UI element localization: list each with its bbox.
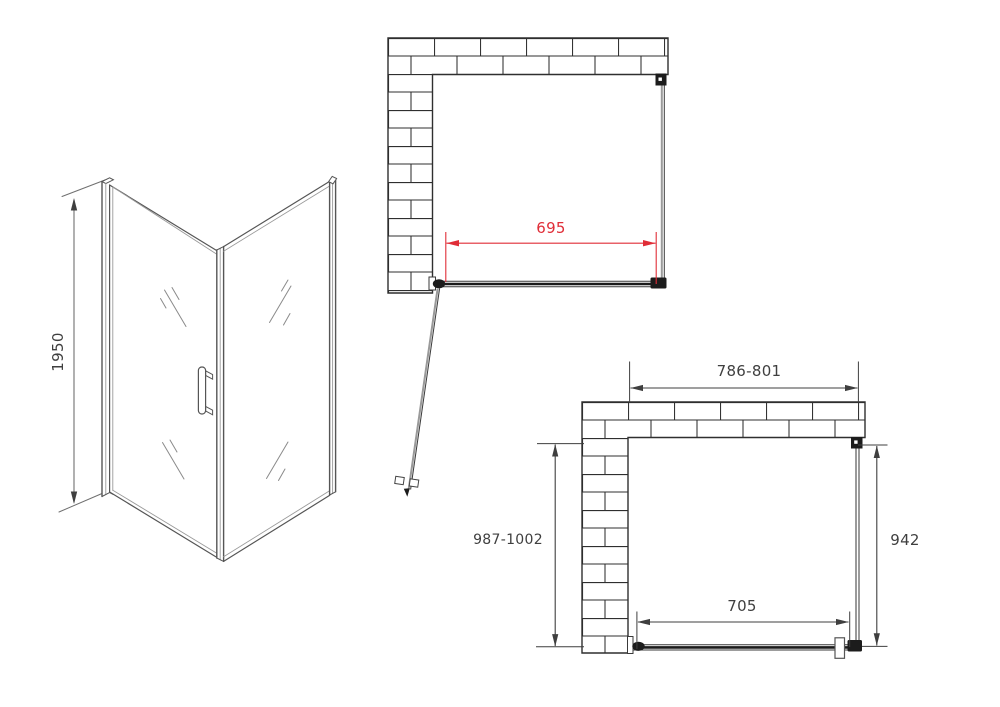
wall-profile (628, 637, 634, 654)
hinge (433, 279, 445, 288)
dim-label-height: 1950 (49, 332, 67, 371)
dim-label-total-depth: 987-1002 (473, 532, 543, 548)
glass-reflection-marks (161, 280, 292, 481)
closed-door-plan (628, 637, 863, 659)
door-knob (409, 479, 419, 487)
total-depth-dimension (536, 444, 584, 647)
arrow-down-icon (874, 633, 880, 646)
arrow-up-icon (552, 444, 558, 457)
dim-label-door-width-open: 695 (536, 219, 566, 237)
wall (388, 38, 668, 293)
arrow-down-icon (71, 492, 77, 505)
corner-post (217, 247, 224, 562)
side-panel-plan (851, 437, 863, 644)
arrow-up-icon (71, 198, 77, 211)
door-knob (835, 638, 845, 659)
door-knob (395, 476, 405, 484)
technical-drawing (0, 0, 1000, 707)
arrow-right-icon (836, 619, 849, 625)
dim-label-door-width-closed: 705 (727, 597, 757, 615)
plan-view-closed (536, 362, 888, 659)
side-panel-dimension (858, 445, 888, 646)
arrow-left-icon (446, 240, 459, 246)
arrow-left-icon (630, 385, 643, 391)
side-panel-plan (656, 74, 667, 282)
arrow-right-icon (845, 385, 858, 391)
door-tip (404, 488, 410, 497)
arrow-right-icon (643, 240, 656, 246)
door-width-dimension (637, 612, 850, 650)
arrow-left-icon (637, 619, 650, 625)
corner-connector (651, 278, 667, 289)
door-handle (198, 367, 212, 415)
perspective-view (59, 176, 337, 561)
dim-label-side-panel: 942 (890, 531, 920, 549)
drawing-canvas: 1950 695 786-801 987-1002 942 705 (0, 0, 1000, 707)
open-door-leaf (395, 277, 445, 497)
door-width-dimension (446, 232, 656, 284)
door-rail-plan (433, 278, 667, 289)
wall (582, 402, 865, 653)
arrow-up-icon (874, 446, 880, 458)
dim-label-opening-width: 786-801 (717, 362, 782, 380)
arrow-down-icon (552, 634, 558, 647)
side-panel (224, 176, 337, 561)
hinge (632, 642, 644, 651)
